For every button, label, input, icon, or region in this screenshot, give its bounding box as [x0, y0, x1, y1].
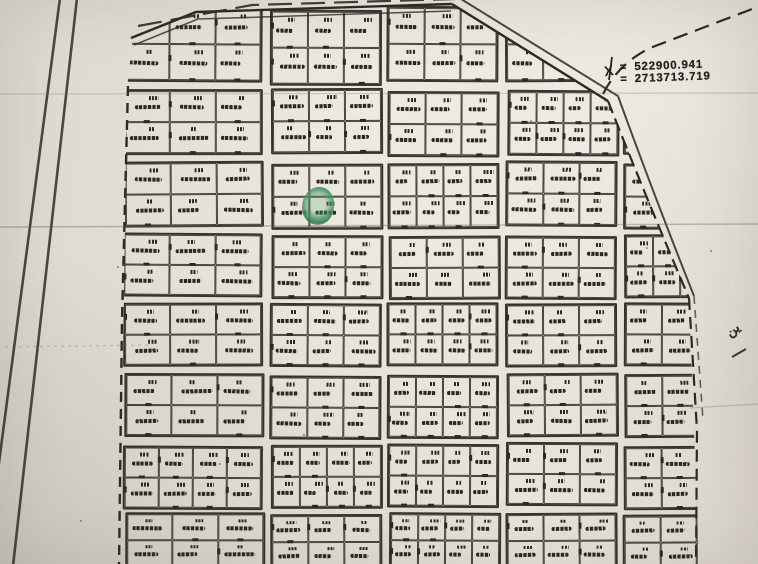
- land-parcel: [507, 238, 543, 268]
- parcel-number-annotation: [679, 340, 687, 344]
- parcel-inscription-annotation: [136, 209, 164, 214]
- parcel-inscription-annotation: [234, 462, 253, 466]
- coordinate-y-row: = 2713713.719: [620, 70, 711, 85]
- land-parcel: [215, 8, 261, 44]
- parcel-inscription-annotation: [705, 180, 722, 184]
- parcel-inscription-annotation: [659, 280, 675, 284]
- parcel-number-annotation: [409, 243, 415, 247]
- parcel-inscription-annotation: [514, 488, 537, 492]
- parcel-number-annotation: [237, 340, 244, 344]
- land-parcel: [389, 476, 416, 506]
- parcel-inscription-annotation: [551, 251, 572, 255]
- parcel-inscription-annotation: [314, 391, 331, 395]
- parcel-inscription-annotation: [224, 552, 255, 556]
- parcel-number-annotation: [481, 310, 490, 314]
- parcel-number-annotation: [241, 453, 249, 457]
- station-tick: [609, 57, 612, 80]
- parcel-inscription-annotation: [466, 139, 486, 143]
- parcel-inscription-annotation: [422, 421, 438, 425]
- parcel-number-annotation: [190, 545, 198, 549]
- parcel-inscription-annotation: [515, 527, 534, 531]
- land-parcel: [697, 121, 733, 152]
- parcel-inscription-annotation: [702, 491, 720, 496]
- parcel-inscription-annotation: [702, 554, 725, 558]
- city-block: [386, 302, 498, 366]
- parcel-inscription-annotation: [394, 391, 409, 395]
- parcel-inscription-annotation: [475, 210, 489, 214]
- parcel-number-annotation: [405, 545, 411, 549]
- parcel-inscription-annotation: [584, 319, 602, 323]
- parcel-inscription-annotation: [420, 348, 437, 353]
- land-parcel: [463, 268, 499, 298]
- parcel-number-annotation: [327, 95, 337, 99]
- land-parcel: [389, 165, 416, 196]
- parcel-inscription-annotation: [392, 318, 409, 322]
- land-parcel: [344, 305, 380, 335]
- parcel-number-annotation: [359, 547, 368, 551]
- land-parcel: [460, 8, 496, 44]
- parcel-number-annotation: [714, 483, 723, 487]
- parcel-number-annotation: [147, 310, 155, 314]
- parcel-inscription-annotation: [478, 527, 491, 531]
- parcel-number-annotation: [692, 241, 701, 245]
- parcel-inscription-annotation: [541, 106, 555, 111]
- parcel-inscription-annotation: [632, 180, 650, 184]
- parcel-number-annotation: [289, 96, 299, 100]
- land-parcel: [545, 375, 581, 405]
- land-parcel: [470, 377, 497, 407]
- parcel-inscription-annotation: [180, 279, 202, 283]
- land-parcel: [172, 405, 217, 435]
- land-parcel: [470, 446, 497, 476]
- parcel-number-annotation: [431, 451, 439, 455]
- land-parcel: [537, 92, 564, 123]
- parcel-inscription-annotation: [178, 208, 199, 213]
- land-parcel: [470, 304, 497, 334]
- land-parcel: [445, 541, 472, 564]
- city-block: [624, 234, 736, 299]
- parcel-number-annotation: [360, 272, 367, 276]
- parcel-inscription-annotation: [551, 349, 571, 353]
- land-parcel: [159, 448, 193, 478]
- land-parcel: [543, 44, 579, 80]
- parcel-inscription-annotation: [277, 319, 302, 323]
- parcel-inscription-annotation: [134, 318, 157, 322]
- land-parcel: [442, 334, 469, 364]
- parcel-number-annotation: [457, 310, 463, 314]
- land-parcel: [390, 93, 426, 124]
- parcel-inscription-annotation: [332, 461, 350, 465]
- parcel-number-annotation: [149, 96, 159, 100]
- land-parcel: [508, 444, 544, 474]
- land-parcel: [300, 447, 327, 477]
- land-parcel: [345, 121, 381, 152]
- land-parcel: [661, 91, 697, 122]
- land-parcel: [443, 446, 470, 476]
- parcel-number-annotation: [360, 383, 369, 387]
- land-parcel: [344, 542, 380, 564]
- land-parcel: [216, 163, 262, 194]
- parcel-inscription-annotation: [224, 419, 246, 423]
- parcel-number-annotation: [285, 482, 293, 486]
- parcel-number-annotation: [361, 126, 369, 130]
- parcel-number-annotation: [646, 453, 655, 457]
- parcel-inscription-annotation: [548, 553, 569, 557]
- parcel-inscription-annotation: [669, 348, 692, 352]
- parcel-number-annotation: [149, 240, 158, 244]
- land-parcel: [580, 540, 616, 564]
- land-parcel: [343, 335, 379, 365]
- land-parcel: [215, 122, 260, 153]
- parcel-number-annotation: [288, 18, 295, 22]
- land-parcel: [543, 335, 579, 365]
- land-parcel: [625, 166, 661, 197]
- parcel-inscription-annotation: [549, 282, 574, 286]
- parcel-number-annotation: [238, 519, 248, 523]
- parcel-inscription-annotation: [129, 60, 158, 65]
- parcel-inscription-annotation: [594, 138, 610, 142]
- city-block: [270, 514, 382, 564]
- parcel-number-annotation: [597, 340, 602, 344]
- land-parcel: [661, 542, 697, 564]
- land-parcel: [170, 235, 216, 265]
- parcel-inscription-annotation: [707, 419, 731, 424]
- parcel-number-annotation: [364, 18, 372, 22]
- parcel-number-annotation: [240, 15, 247, 19]
- parcel-number-annotation: [441, 273, 450, 277]
- parcel-number-annotation: [560, 449, 568, 453]
- city-block: [506, 442, 618, 507]
- parcel-inscription-annotation: [515, 137, 531, 141]
- parcel-inscription-annotation: [586, 349, 608, 353]
- parcel-inscription-annotation: [584, 488, 605, 493]
- parcel-number-annotation: [595, 50, 603, 54]
- parcel-number-annotation: [562, 168, 571, 172]
- parcel-number-annotation: [429, 545, 435, 549]
- parcel-number-annotation: [560, 519, 566, 523]
- parcel-number-annotation: [677, 411, 687, 415]
- parcel-inscription-annotation: [395, 552, 411, 556]
- parcel-inscription-annotation: [280, 64, 305, 68]
- parcel-inscription-annotation: [421, 318, 436, 322]
- parcel-number-annotation: [640, 310, 646, 314]
- parcel-inscription-annotation: [466, 61, 484, 65]
- parcel-inscription-annotation: [314, 554, 331, 558]
- station-x-mark: X: [603, 62, 615, 79]
- land-parcel: [327, 477, 354, 507]
- land-parcel: [127, 540, 172, 564]
- parcel-inscription-annotation: [419, 391, 436, 396]
- dust-speck: [219, 463, 221, 465]
- land-parcel: [461, 124, 497, 155]
- dust-speck: [80, 520, 82, 522]
- land-parcel: [171, 194, 217, 225]
- parcel-number-annotation: [524, 168, 531, 172]
- parcel-number-annotation: [457, 545, 466, 549]
- parcel-number-annotation: [640, 242, 648, 246]
- parcel-inscription-annotation: [702, 104, 724, 109]
- parcel-number-annotation: [237, 545, 243, 549]
- parcel-number-annotation: [527, 199, 535, 203]
- land-parcel: [680, 266, 707, 296]
- coordinate-y-value: 2713713.719: [635, 70, 711, 85]
- parcel-inscription-annotation: [585, 60, 609, 65]
- parcel-number-annotation: [150, 169, 159, 173]
- parcel-number-annotation: [680, 547, 687, 551]
- city-block: [507, 373, 619, 438]
- parcel-number-annotation: [189, 200, 196, 204]
- parcel-inscription-annotation: [467, 251, 484, 255]
- parcel-inscription-annotation: [668, 318, 685, 322]
- parcel-number-annotation: [550, 128, 559, 132]
- parcel-number-annotation: [643, 96, 648, 100]
- parcel-number-annotation: [481, 481, 487, 485]
- parcel-inscription-annotation: [469, 281, 491, 285]
- parcel-number-annotation: [358, 311, 368, 315]
- city-block: [389, 236, 501, 301]
- parcel-inscription-annotation: [630, 462, 650, 467]
- parcel-number-annotation: [639, 521, 645, 525]
- dust-speck: [530, 120, 532, 122]
- parcel-inscription-annotation: [353, 528, 371, 533]
- parcel-inscription-annotation: [705, 461, 730, 466]
- parcel-number-annotation: [323, 521, 331, 525]
- parcel-number-annotation: [400, 412, 409, 416]
- land-parcel: [509, 123, 536, 154]
- land-parcel: [590, 123, 617, 154]
- land-parcel: [661, 166, 697, 197]
- parcel-inscription-annotation: [666, 105, 684, 109]
- parcel-number-annotation: [140, 453, 148, 457]
- land-parcel: [579, 8, 615, 44]
- land-parcel: [444, 196, 471, 227]
- parcel-number-annotation: [323, 413, 333, 417]
- parcel-inscription-annotation: [702, 135, 722, 140]
- parcel-inscription-annotation: [585, 389, 602, 393]
- parcel-number-annotation: [189, 340, 199, 344]
- land-parcel: [697, 197, 733, 228]
- parcel-number-annotation: [140, 483, 149, 487]
- land-parcel: [507, 335, 543, 365]
- parcel-inscription-annotation: [633, 211, 657, 215]
- land-parcel: [579, 163, 615, 194]
- parcel-inscription-annotation: [133, 389, 154, 393]
- land-parcel: [218, 540, 263, 564]
- parcel-inscription-annotation: [469, 108, 487, 112]
- city-block: [507, 90, 619, 157]
- parcel-inscription-annotation: [448, 348, 465, 353]
- parcel-inscription-annotation: [432, 138, 454, 142]
- parcel-number-annotation: [189, 380, 195, 384]
- parcel-number-annotation: [479, 243, 485, 247]
- parcel-number-annotation: [485, 519, 492, 523]
- land-parcel: [443, 304, 470, 334]
- parcel-number-annotation: [192, 310, 199, 314]
- parcel-inscription-annotation: [430, 107, 449, 111]
- land-parcel: [427, 268, 463, 298]
- land-parcel: [170, 335, 215, 365]
- land-parcel: [389, 446, 416, 476]
- land-parcel: [443, 407, 470, 437]
- city-block: [122, 233, 262, 298]
- parcel-number-annotation: [665, 271, 674, 275]
- city-block: [624, 373, 736, 438]
- land-parcel: [625, 91, 661, 122]
- parcel-number-annotation: [188, 240, 195, 244]
- parcel-inscription-annotation: [132, 248, 160, 253]
- parcel-inscription-annotation: [398, 252, 415, 256]
- land-parcel: [217, 375, 262, 405]
- parcel-inscription-annotation: [513, 25, 530, 29]
- parcel-number-annotation: [327, 383, 335, 387]
- land-parcel: [125, 8, 171, 44]
- parcel-number-annotation: [430, 412, 437, 416]
- parcel-number-annotation: [289, 54, 298, 58]
- parcel-inscription-annotation: [669, 180, 694, 185]
- land-parcel: [653, 266, 680, 296]
- land-parcel: [273, 447, 300, 477]
- land-parcel: [698, 478, 734, 508]
- parcel-number-annotation: [194, 96, 202, 100]
- parcel-inscription-annotation: [447, 490, 463, 494]
- parcel-inscription-annotation: [629, 136, 648, 140]
- land-parcel: [579, 514, 615, 540]
- parcel-inscription-annotation: [549, 488, 572, 492]
- land-parcel: [273, 477, 300, 507]
- parcel-number-annotation: [637, 272, 643, 276]
- parcel-inscription-annotation: [281, 251, 305, 255]
- parcel-number-annotation: [401, 451, 410, 455]
- parcel-number-annotation: [679, 53, 688, 57]
- parcel-number-annotation: [443, 243, 451, 247]
- parcel-number-annotation: [456, 519, 464, 523]
- parcel-inscription-annotation: [705, 27, 730, 32]
- land-parcel: [388, 44, 424, 80]
- land-parcel: [345, 237, 381, 267]
- parcel-inscription-annotation: [550, 25, 572, 29]
- land-parcel: [697, 90, 733, 121]
- parcel-number-annotation: [525, 273, 532, 277]
- parcel-inscription-annotation: [350, 180, 374, 184]
- parcel-inscription-annotation: [350, 28, 367, 32]
- parcel-number-annotation: [427, 340, 434, 344]
- parcel-inscription-annotation: [551, 61, 570, 65]
- left-road-line-outer: [0, 0, 60, 470]
- land-parcel: [697, 516, 733, 542]
- land-parcel: [661, 122, 697, 153]
- parcel-number-annotation: [481, 451, 489, 455]
- parcel-inscription-annotation: [221, 279, 252, 284]
- parcel-inscription-annotation: [515, 106, 527, 110]
- parcel-number-annotation: [644, 340, 651, 344]
- parcel-inscription-annotation: [633, 420, 651, 424]
- land-parcel: [389, 8, 425, 44]
- city-block: [505, 236, 617, 301]
- parcel-number-annotation: [716, 17, 721, 21]
- parcel-inscription-annotation: [313, 319, 335, 324]
- parcel-number-annotation: [193, 14, 199, 18]
- city-block: [122, 6, 263, 83]
- land-parcel: [416, 446, 443, 476]
- parcel-inscription-annotation: [396, 107, 420, 111]
- parcel-inscription-annotation: [225, 348, 253, 352]
- parcel-number-annotation: [145, 14, 153, 18]
- parcel-number-annotation: [641, 53, 651, 57]
- parcel-inscription-annotation: [424, 552, 440, 556]
- land-parcel: [424, 44, 460, 80]
- land-parcel: [272, 335, 308, 365]
- arabic-label-fragment: ين: [723, 320, 744, 341]
- parcel-number-annotation: [400, 310, 406, 314]
- parcel-number-annotation: [403, 202, 411, 206]
- parcel-number-annotation: [326, 242, 332, 246]
- land-parcel: [272, 542, 308, 564]
- parcel-number-annotation: [679, 96, 686, 100]
- parcel-number-annotation: [480, 130, 485, 134]
- parcel-number-annotation: [562, 50, 569, 54]
- land-parcel: [661, 516, 697, 542]
- land-parcel: [170, 8, 216, 44]
- parcel-inscription-annotation: [350, 251, 367, 255]
- land-parcel: [227, 478, 261, 508]
- parcel-number-annotation: [640, 127, 649, 131]
- land-parcel: [507, 515, 543, 541]
- parcel-inscription-annotation: [513, 319, 535, 323]
- land-parcel: [626, 236, 653, 266]
- land-parcel: [343, 378, 379, 408]
- equals-sign: =: [620, 73, 628, 85]
- parcel-number-annotation: [209, 453, 218, 457]
- land-parcel: [544, 474, 580, 504]
- land-parcel: [271, 377, 307, 407]
- parcel-inscription-annotation: [712, 280, 726, 284]
- parcel-number-annotation: [523, 128, 531, 132]
- land-parcel: [309, 121, 345, 152]
- parcel-number-annotation: [401, 481, 409, 485]
- land-parcel: [626, 266, 653, 296]
- land-parcel: [653, 236, 680, 266]
- parcel-number-annotation: [677, 310, 687, 314]
- land-parcel: [170, 122, 215, 153]
- parcel-number-annotation: [600, 479, 605, 483]
- parcel-inscription-annotation: [176, 318, 205, 322]
- parcel-number-annotation: [147, 200, 153, 204]
- city-block: [125, 512, 265, 564]
- land-parcel: [344, 12, 380, 48]
- parcel-inscription-annotation: [449, 552, 461, 556]
- parcel-inscription-annotation: [420, 489, 432, 493]
- parcel-number-annotation: [360, 95, 369, 99]
- parcel-inscription-annotation: [668, 554, 692, 559]
- parcel-number-annotation: [237, 381, 243, 385]
- parcel-number-annotation: [712, 202, 719, 206]
- land-parcel: [425, 124, 461, 155]
- land-parcel: [126, 375, 171, 405]
- left-road-line-inner: [13, 0, 77, 564]
- parcel-number-annotation: [239, 271, 247, 275]
- land-parcel: [625, 197, 661, 228]
- land-parcel: [581, 375, 617, 405]
- land-parcel: [124, 44, 170, 80]
- parcel-inscription-annotation: [551, 527, 571, 531]
- land-parcel: [125, 447, 159, 477]
- parcel-number-annotation: [482, 273, 489, 277]
- parcel-number-annotation: [595, 380, 603, 384]
- parcel-number-annotation: [550, 97, 557, 101]
- parcel-inscription-annotation: [396, 138, 417, 142]
- parcel-inscription-annotation: [587, 208, 603, 212]
- land-parcel: [215, 91, 260, 122]
